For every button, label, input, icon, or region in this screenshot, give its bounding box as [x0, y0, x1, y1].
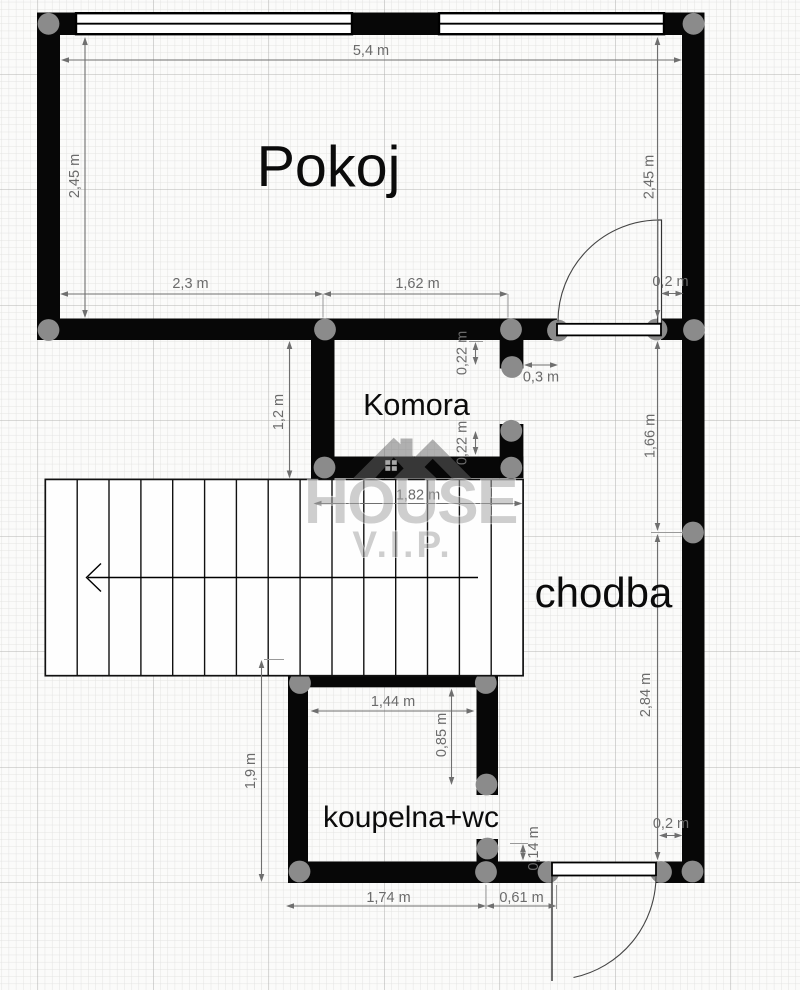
- svg-text:chodba: chodba: [535, 569, 673, 616]
- svg-text:1,2 m: 1,2 m: [271, 394, 287, 430]
- svg-text:0,85 m: 0,85 m: [434, 713, 450, 757]
- svg-text:0,61 m: 0,61 m: [499, 890, 543, 906]
- svg-text:1,9 m: 1,9 m: [243, 753, 259, 789]
- svg-text:1,62 m: 1,62 m: [395, 276, 439, 292]
- svg-text:1,44 m: 1,44 m: [371, 694, 415, 710]
- svg-text:0,2 m: 0,2 m: [652, 274, 688, 290]
- svg-text:1,66 m: 1,66 m: [643, 414, 659, 458]
- svg-text:0,22 m: 0,22 m: [455, 421, 471, 465]
- svg-text:0,14 m: 0,14 m: [526, 826, 542, 870]
- svg-text:Komora: Komora: [363, 388, 470, 422]
- svg-text:2,45 m: 2,45 m: [642, 155, 658, 199]
- svg-text:0,2 m: 0,2 m: [653, 816, 689, 832]
- svg-text:V.I.P.: V.I.P.: [352, 524, 452, 565]
- svg-text:2,84 m: 2,84 m: [638, 673, 654, 717]
- svg-text:0,22 m: 0,22 m: [455, 331, 471, 375]
- svg-text:1,74 m: 1,74 m: [366, 890, 410, 906]
- svg-text:2,45 m: 2,45 m: [67, 154, 83, 198]
- svg-text:koupelna+wc: koupelna+wc: [323, 801, 499, 834]
- svg-text:5,4 m: 5,4 m: [353, 43, 389, 59]
- svg-text:Pokoj: Pokoj: [257, 135, 401, 199]
- svg-text:2,3 m: 2,3 m: [172, 276, 208, 292]
- svg-text:0,3 m: 0,3 m: [523, 370, 559, 386]
